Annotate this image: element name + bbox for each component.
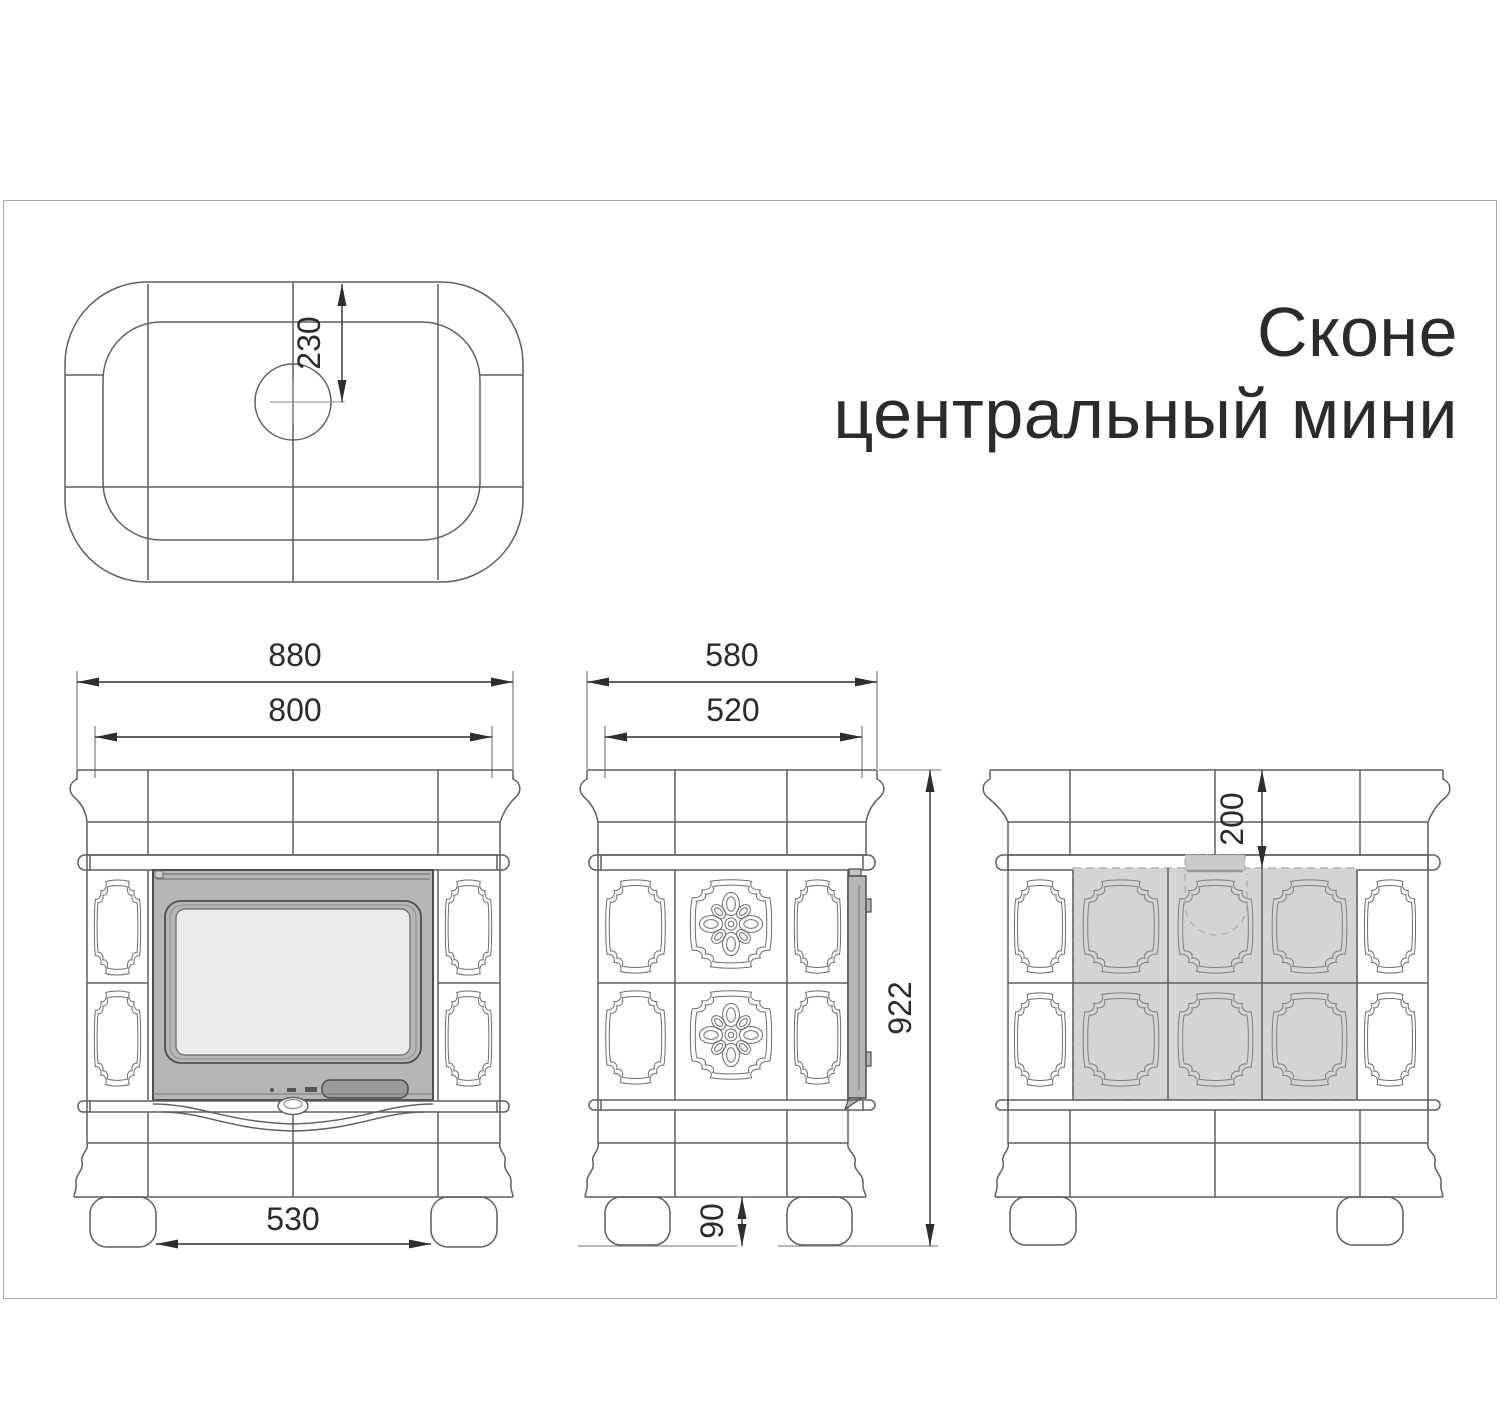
firebox-door [153, 870, 433, 1100]
dim-feet-width: 530 [156, 1201, 431, 1244]
dim-label-580: 580 [705, 637, 758, 673]
front-foot-left [90, 1197, 156, 1247]
dim-flue-offset: 230 [291, 284, 342, 402]
side-base [578, 1110, 938, 1246]
side-foot-front [605, 1197, 670, 1245]
apron-knob [278, 1098, 308, 1115]
front-crown [70, 770, 520, 855]
rear-foot-left [1010, 1197, 1076, 1245]
panel-shading [1073, 868, 1357, 1100]
rear-access-panel [1073, 855, 1357, 1100]
door-handle [322, 1080, 408, 1098]
rear-base [995, 1110, 1443, 1245]
dim-label-90: 90 [694, 1203, 730, 1239]
top-view: 230 [65, 282, 523, 582]
side-foot-back [787, 1197, 852, 1245]
door-latch-icon [155, 871, 163, 878]
rosette-ornament-upper [699, 892, 762, 955]
side-door-profile [845, 869, 871, 1109]
dim-top-depth: 520 [605, 692, 862, 778]
page: { "title": { "line1": "Сконе", "line2": … [0, 0, 1500, 1427]
dim-label-530: 530 [266, 1201, 319, 1237]
flue-connection-tab [1185, 855, 1245, 870]
dim-label-200: 200 [1214, 792, 1250, 845]
technical-drawing-svg: 230 880 800 [0, 0, 1500, 1427]
rosette-ornament-lower [699, 1003, 762, 1066]
side-torus-lower [589, 1100, 875, 1110]
dim-label-922: 922 [882, 981, 918, 1034]
front-view: 880 800 [70, 637, 520, 1247]
side-view: 580 520 [578, 637, 941, 1246]
rear-view: 200 [983, 770, 1450, 1245]
side-torus-upper [589, 855, 875, 870]
dim-overall-height: 922 [879, 770, 941, 1246]
door-control-vent2 [305, 1087, 317, 1092]
door-glass [176, 909, 410, 1055]
rear-foot-right [1337, 1197, 1403, 1245]
dim-label-520: 520 [706, 692, 759, 728]
side-tiles [606, 880, 841, 1084]
front-torus-upper [78, 855, 509, 870]
dim-label-880: 880 [268, 637, 321, 673]
dim-label-800: 800 [268, 692, 321, 728]
dim-top-width: 800 [95, 692, 492, 778]
door-control-vent1 [287, 1088, 296, 1092]
front-foot-right [431, 1197, 497, 1247]
side-crown [580, 770, 884, 855]
door-control-dot [270, 1088, 274, 1092]
dim-flue-panel-offset: 200 [1214, 770, 1262, 868]
dim-label-230: 230 [291, 316, 327, 369]
rear-torus-lower [996, 1100, 1440, 1110]
dim-feet-height: 90 [694, 1197, 752, 1246]
